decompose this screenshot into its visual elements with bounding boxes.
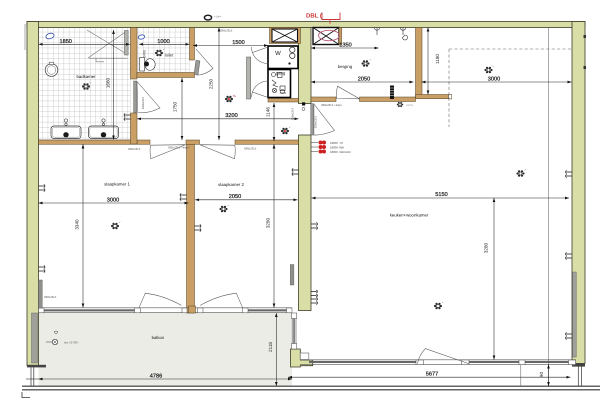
svg-text:90: 90 <box>539 372 544 378</box>
svg-text:1660: 1660 <box>106 77 111 88</box>
svg-text:1146: 1146 <box>266 107 271 117</box>
svg-text:balkon: balkon <box>152 335 165 340</box>
svg-text:938x2315: 938x2315 <box>291 107 295 120</box>
svg-text:1600+ WA: 1600+ WA <box>330 146 344 150</box>
svg-text:5150: 5150 <box>435 192 447 198</box>
svg-text:938x2315: 938x2315 <box>244 147 257 151</box>
svg-text:W: W <box>275 50 281 57</box>
svg-text:938x2315: 938x2315 <box>44 295 57 299</box>
svg-text:DBL (: DBL ( <box>306 13 322 20</box>
svg-text:1400: 1400 <box>143 50 147 58</box>
svg-text:gang: gang <box>276 71 286 76</box>
svg-text:3200: 3200 <box>225 113 237 119</box>
svg-text:938x2315 +knip+: 938x2315 +knip+ <box>321 103 343 107</box>
svg-text:5677: 5677 <box>426 372 438 378</box>
svg-text:3280: 3280 <box>266 217 271 228</box>
svg-text:2050: 2050 <box>358 77 370 83</box>
svg-text:938x2315: 938x2315 <box>141 96 145 109</box>
svg-text:slaapkamer 1: slaapkamer 1 <box>104 182 130 187</box>
svg-text:3280: 3280 <box>484 242 489 253</box>
svg-text:1600+ intercom: 1600+ intercom <box>330 150 351 154</box>
svg-text:938x2315: 938x2315 <box>220 29 233 33</box>
svg-text:+10b+: +10b+ <box>214 16 222 19</box>
svg-text:1180: 1180 <box>435 54 440 64</box>
svg-text:badkamer: badkamer <box>76 74 96 79</box>
svg-text:938x2315: 938x2315 <box>314 115 318 128</box>
svg-text:938x2315: 938x2315 <box>128 147 141 151</box>
svg-text:+575+: +575+ <box>406 104 414 107</box>
svg-text:keuken+woonkamer: keuken+woonkamer <box>390 213 429 218</box>
svg-text:3340: 3340 <box>75 219 80 230</box>
svg-text:4786: 4786 <box>150 373 162 379</box>
svg-text:1750: 1750 <box>173 101 178 112</box>
svg-text:slaapkamer 2: slaapkamer 2 <box>218 182 244 187</box>
svg-text:2118: 2118 <box>268 342 273 352</box>
svg-text:3000: 3000 <box>107 197 119 203</box>
svg-text:1500: 1500 <box>232 40 244 46</box>
svg-text:2050: 2050 <box>229 194 241 200</box>
svg-text:1350: 1350 <box>339 43 351 49</box>
svg-text:2250: 2250 <box>209 78 214 89</box>
svg-text:berging: berging <box>338 64 353 69</box>
svg-text:1850: 1850 <box>59 39 71 45</box>
svg-text:rm: rm <box>233 95 236 98</box>
svg-text:toilet: toilet <box>165 53 174 58</box>
svg-text:1600+ TV: 1600+ TV <box>330 141 343 145</box>
svg-text:1000: 1000 <box>157 39 169 45</box>
svg-text:938x2315 +knip+: 938x2315 +knip+ <box>168 146 190 150</box>
svg-text:3000: 3000 <box>488 77 500 83</box>
svg-text:wa +2700+: wa +2700+ <box>64 341 79 345</box>
